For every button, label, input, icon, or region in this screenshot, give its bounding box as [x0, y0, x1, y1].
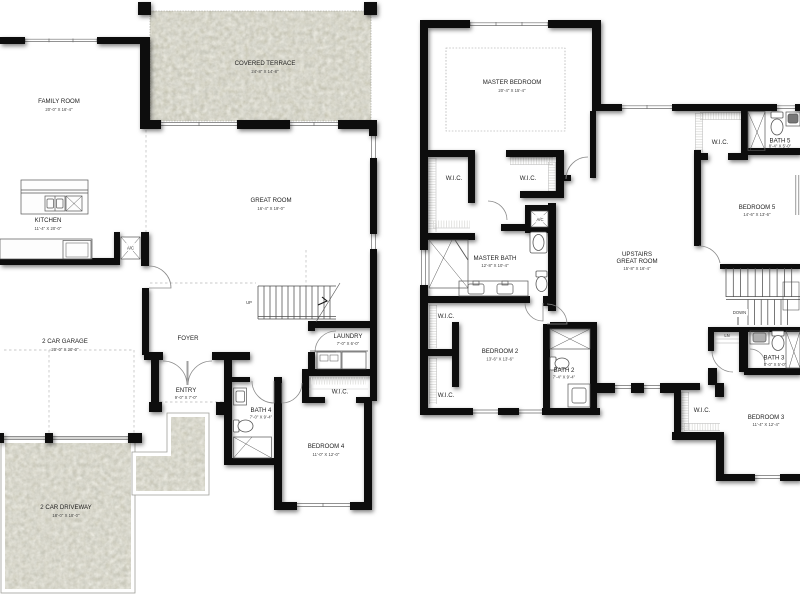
svg-text:W.I.C.: W.I.C. [446, 175, 463, 182]
svg-text:18'-0" X 18'-0": 18'-0" X 18'-0" [52, 513, 80, 518]
svg-text:BATH 2: BATH 2 [554, 367, 575, 374]
svg-text:8'-0" X 5'-0": 8'-0" X 5'-0" [764, 362, 787, 367]
svg-text:BATH 3: BATH 3 [764, 355, 785, 362]
svg-text:BEDROOM 5: BEDROOM 5 [739, 204, 776, 211]
svg-text:11'-4" X 20'-0": 11'-4" X 20'-0" [35, 226, 62, 231]
svg-text:A/C: A/C [537, 217, 544, 222]
svg-text:14'-6" X 13'-6": 14'-6" X 13'-6" [743, 212, 771, 217]
svg-text:11'-0" X 12'-0": 11'-0" X 12'-0" [313, 452, 340, 457]
svg-text:2 CAR DRIVEWAY: 2 CAR DRIVEWAY [40, 504, 91, 511]
svg-text:W.I.C.: W.I.C. [438, 313, 455, 320]
svg-text:12'-8" X 10'-4": 12'-8" X 10'-4" [481, 263, 509, 268]
svg-text:20'-0" X 16'-4": 20'-0" X 16'-4" [45, 107, 73, 112]
svg-text:13'-6" X 13'-6": 13'-6" X 13'-6" [486, 357, 514, 362]
svg-text:16'-4" X 19'-0": 16'-4" X 19'-0" [257, 206, 285, 211]
svg-text:BATH 4: BATH 4 [251, 407, 272, 414]
svg-text:COVERED TERRACE: COVERED TERRACE [235, 60, 296, 67]
svg-text:20'-4" X 15'-4": 20'-4" X 15'-4" [498, 88, 526, 93]
svg-text:W.I.C.: W.I.C. [332, 389, 349, 396]
svg-text:DOWN: DOWN [733, 310, 746, 315]
svg-text:FOYER: FOYER [178, 335, 200, 342]
svg-text:MASTER BATH: MASTER BATH [474, 255, 517, 262]
svg-text:24'-8" X 14'-8": 24'-8" X 14'-8" [251, 69, 279, 74]
svg-text:W.I.C.: W.I.C. [712, 139, 729, 146]
svg-text:KITCHEN: KITCHEN [35, 217, 62, 224]
svg-text:7'-4" X 9'-4": 7'-4" X 9'-4" [553, 375, 576, 380]
svg-text:W.I.C.: W.I.C. [438, 392, 455, 399]
svg-text:2 CAR GARAGE: 2 CAR GARAGE [42, 338, 88, 345]
svg-text:GREAT ROOM: GREAT ROOM [616, 258, 657, 265]
svg-text:8'-4" X 5'-0": 8'-4" X 5'-0" [769, 144, 792, 149]
svg-text:BEDROOM 2: BEDROOM 2 [482, 348, 519, 355]
svg-text:11'-4" X 12'-4": 11'-4" X 12'-4" [753, 422, 780, 427]
svg-text:LAUNDRY: LAUNDRY [333, 333, 362, 340]
svg-text:BEDROOM 4: BEDROOM 4 [308, 443, 345, 450]
svg-text:20'-0" X 20'-0": 20'-0" X 20'-0" [51, 347, 79, 352]
svg-text:GREAT ROOM: GREAT ROOM [250, 197, 291, 204]
svg-text:7'-0" X 6'-0": 7'-0" X 6'-0" [337, 341, 360, 346]
svg-text:MASTER BEDROOM: MASTER BEDROOM [483, 79, 542, 86]
svg-text:UPSTAIRS: UPSTAIRS [622, 251, 652, 258]
svg-text:A/C: A/C [127, 246, 134, 251]
svg-text:ENTRY: ENTRY [176, 387, 197, 394]
svg-text:UP: UP [246, 300, 252, 305]
svg-text:9'-0" X 7'-0": 9'-0" X 7'-0" [175, 395, 198, 400]
svg-text:15'-8" X 16'-4": 15'-8" X 16'-4" [623, 266, 651, 271]
svg-text:LN: LN [724, 333, 729, 338]
svg-text:W.I.C.: W.I.C. [694, 407, 711, 414]
svg-text:W.I.C.: W.I.C. [520, 175, 537, 182]
svg-text:FAMILY ROOM: FAMILY ROOM [38, 98, 80, 105]
svg-text:BEDROOM 3: BEDROOM 3 [748, 414, 785, 421]
svg-text:7'-0" X 9'-4": 7'-0" X 9'-4" [250, 415, 273, 420]
